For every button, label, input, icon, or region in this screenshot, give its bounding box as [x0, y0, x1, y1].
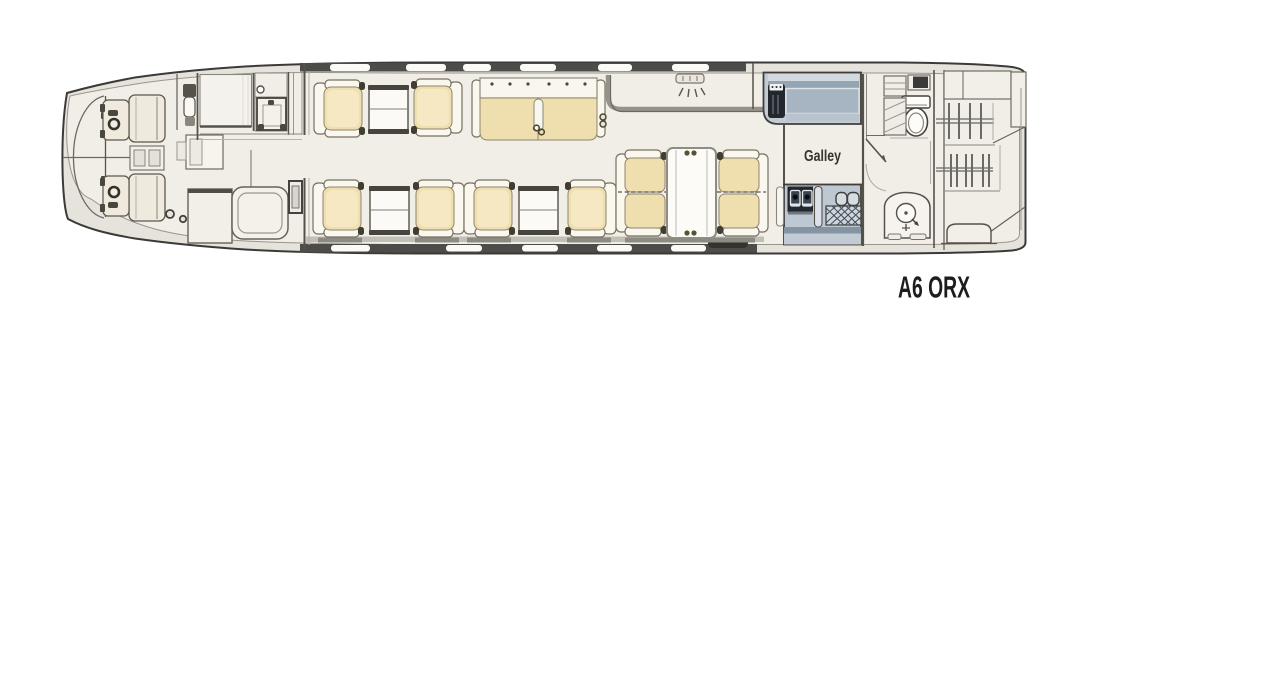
- svg-text:A6 ORX: A6 ORX: [898, 271, 970, 305]
- svg-text:Galley: Galley: [804, 148, 841, 165]
